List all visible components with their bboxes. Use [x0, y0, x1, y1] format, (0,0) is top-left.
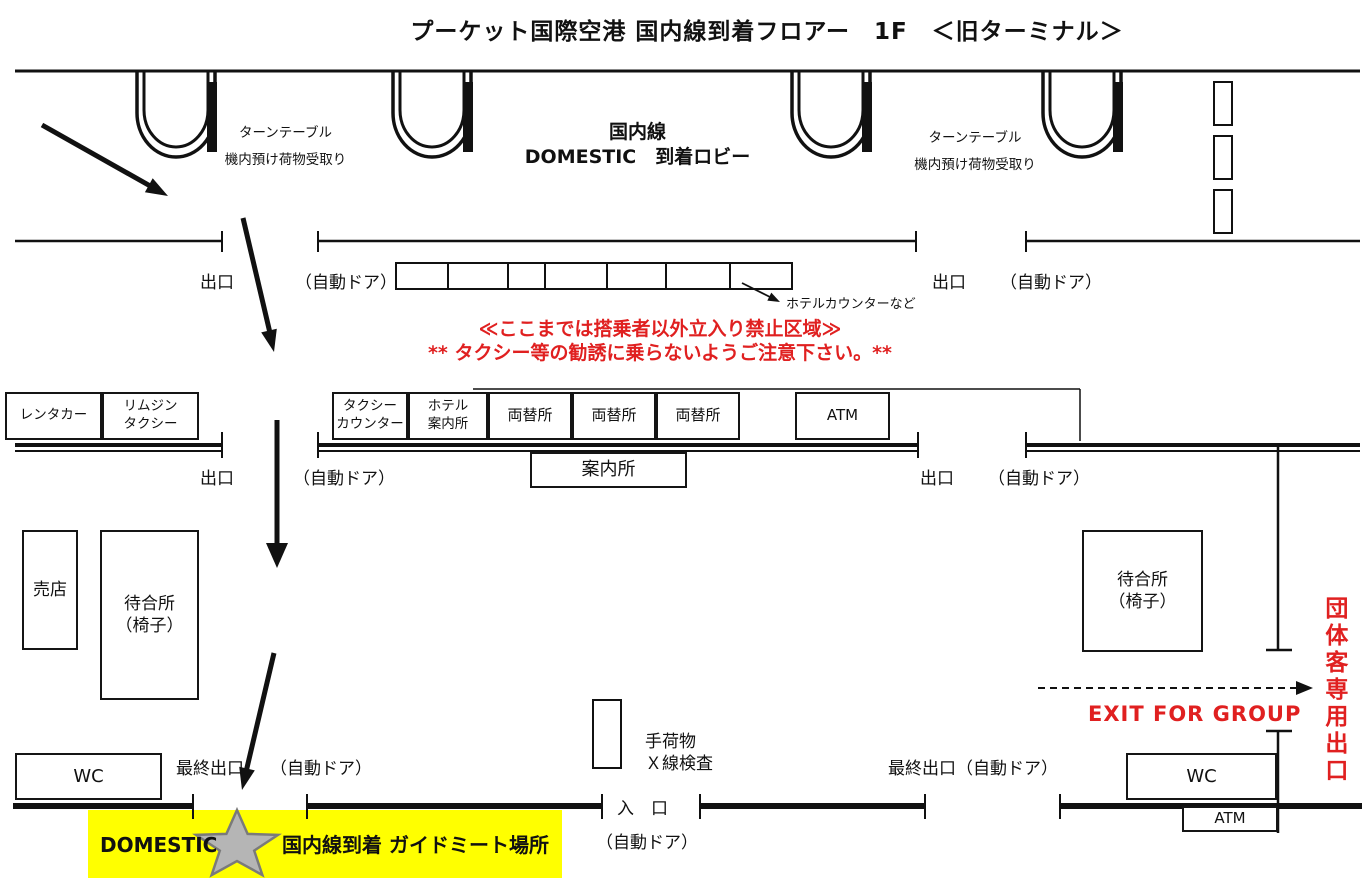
meeting-point-label: 国内線到着 ガイドミート場所 [282, 832, 549, 858]
floor-plan: プーケット国際空港 国内線到着フロアー 1F ＜旧ターミナル＞ ターンテーブル … [0, 0, 1364, 894]
turntable-label-line2: 機内預け荷物受取り [218, 147, 353, 174]
restricted-area-warning: ≪ここまでは搭乗者以外立入り禁止区域≫ ** タクシー等の勧誘に乗らないようご注… [380, 318, 940, 366]
atm-booth: ATM [1182, 806, 1278, 832]
shop-area: 売店 [22, 530, 78, 650]
hotel-info-booth: ホテル 案内所 [408, 392, 488, 440]
baggage-turntable-icon [137, 71, 217, 157]
lobby-title-line2: DOMESTIC 到着ロビー [490, 145, 785, 170]
turntable-label: ターンテーブル 機内預け荷物受取り [218, 120, 353, 174]
waiting-area: 待合所 （椅子） [1082, 530, 1203, 652]
auto-door-label: （自動ドア） [988, 468, 1090, 490]
info-desk-label: 案内所 [582, 458, 636, 481]
taxi-counter-line2: カウンター [336, 416, 404, 434]
warning-line1: ≪ここまでは搭乗者以外立入り禁止区域≫ [380, 318, 940, 342]
entrance-label: 入 口 [617, 798, 668, 820]
meeting-point-domestic-label: DOMESTIC [100, 832, 217, 858]
turntable-label: ターンテーブル 機内預け荷物受取り [895, 125, 1055, 179]
xray-machine-icon [593, 700, 621, 768]
auto-door-label: （自動ドア） [295, 272, 397, 294]
exit-label: 出口 [200, 272, 234, 294]
wc-label: WC [73, 765, 103, 788]
exit-for-group-label: EXIT FOR GROUP [1088, 701, 1301, 728]
limousine-label-line1: リムジン [124, 398, 178, 416]
flow-arrow-icon [266, 420, 288, 568]
auto-door-label: （自動ドア） [293, 468, 395, 490]
group-exit-arrow-icon [1038, 681, 1313, 695]
lobby-title-line1: 国内線 [490, 120, 785, 145]
currency-exchange-booth: 両替所 [656, 392, 740, 440]
flow-arrow-icon [239, 653, 274, 790]
exchange-label: 両替所 [675, 406, 720, 426]
baggage-turntable-icon [393, 71, 473, 157]
waiting-label-line2: （椅子） [1109, 591, 1177, 613]
rentacar-label: レンタカー [20, 407, 88, 425]
group-exit-vertical-label: 団体客専用出口 [1318, 596, 1348, 796]
flow-arrow-icon [42, 125, 168, 196]
info-desk: 案内所 [530, 452, 687, 488]
wc-area: WC [1126, 753, 1277, 800]
waiting-area: 待合所 （椅子） [100, 530, 199, 700]
limousine-taxi-booth: リムジン タクシー [102, 392, 199, 440]
hotel-counter-note: ホテルカウンターなど [786, 297, 916, 314]
auto-door-label: （自動ドア） [270, 758, 372, 780]
hotel-info-line2: 案内所 [428, 416, 469, 434]
xray-label-line1: 手荷物 [645, 731, 713, 753]
rentacar-booth: レンタカー [5, 392, 102, 440]
taxi-counter-booth: タクシー カウンター [332, 392, 408, 440]
xray-label-line2: Ｘ線検査 [645, 753, 713, 775]
auto-door-label: （自動ドア） [1000, 272, 1102, 294]
baggage-turntable-icon [792, 71, 872, 157]
limousine-label-line2: タクシー [124, 416, 178, 434]
lobby-title: 国内線 DOMESTIC 到着ロビー [490, 120, 785, 169]
waiting-label-line1: 待合所 [1117, 569, 1168, 591]
wc-label: WC [1186, 765, 1216, 788]
flow-arrow-icon [243, 218, 277, 352]
baggage-turntable-icon [1043, 71, 1123, 157]
atm-label: ATM [1214, 809, 1245, 829]
xray-label: 手荷物 Ｘ線検査 [645, 731, 713, 775]
atm-booth: ATM [795, 392, 890, 440]
shop-label: 売店 [33, 579, 67, 601]
exit-label: 出口 [932, 272, 966, 294]
wall-line [15, 231, 1360, 252]
exchange-label: 両替所 [591, 406, 636, 426]
currency-exchange-booth: 両替所 [488, 392, 572, 440]
wc-area: WC [15, 753, 162, 800]
hotel-counter-strip [396, 263, 792, 289]
warning-line2: ** タクシー等の勧誘に乗らないようご注意下さい。** [380, 342, 940, 366]
turntable-label-line1: ターンテーブル [218, 120, 353, 147]
atm-label: ATM [827, 406, 858, 426]
exit-label: 出口 [200, 468, 234, 490]
hotel-info-line1: ホテル [428, 398, 469, 416]
turntable-label-line1: ターンテーブル [895, 125, 1055, 152]
auto-door-label: （自動ドア） [596, 832, 698, 854]
currency-exchange-booth: 両替所 [572, 392, 656, 440]
final-exit-auto-door-label: 最終出口（自動ドア） [888, 758, 1058, 780]
page-title: プーケット国際空港 国内線到着フロアー 1F ＜旧ターミナル＞ [170, 18, 1364, 48]
taxi-counter-line1: タクシー [343, 398, 397, 416]
pillar-icon [1214, 82, 1232, 233]
exit-label: 出口 [920, 468, 954, 490]
final-exit-label: 最終出口 [176, 758, 244, 780]
turntable-label-line2: 機内預け荷物受取り [895, 152, 1055, 179]
waiting-label-line1: 待合所 [124, 593, 175, 615]
exchange-label: 両替所 [507, 406, 552, 426]
waiting-label-line2: （椅子） [116, 615, 184, 637]
